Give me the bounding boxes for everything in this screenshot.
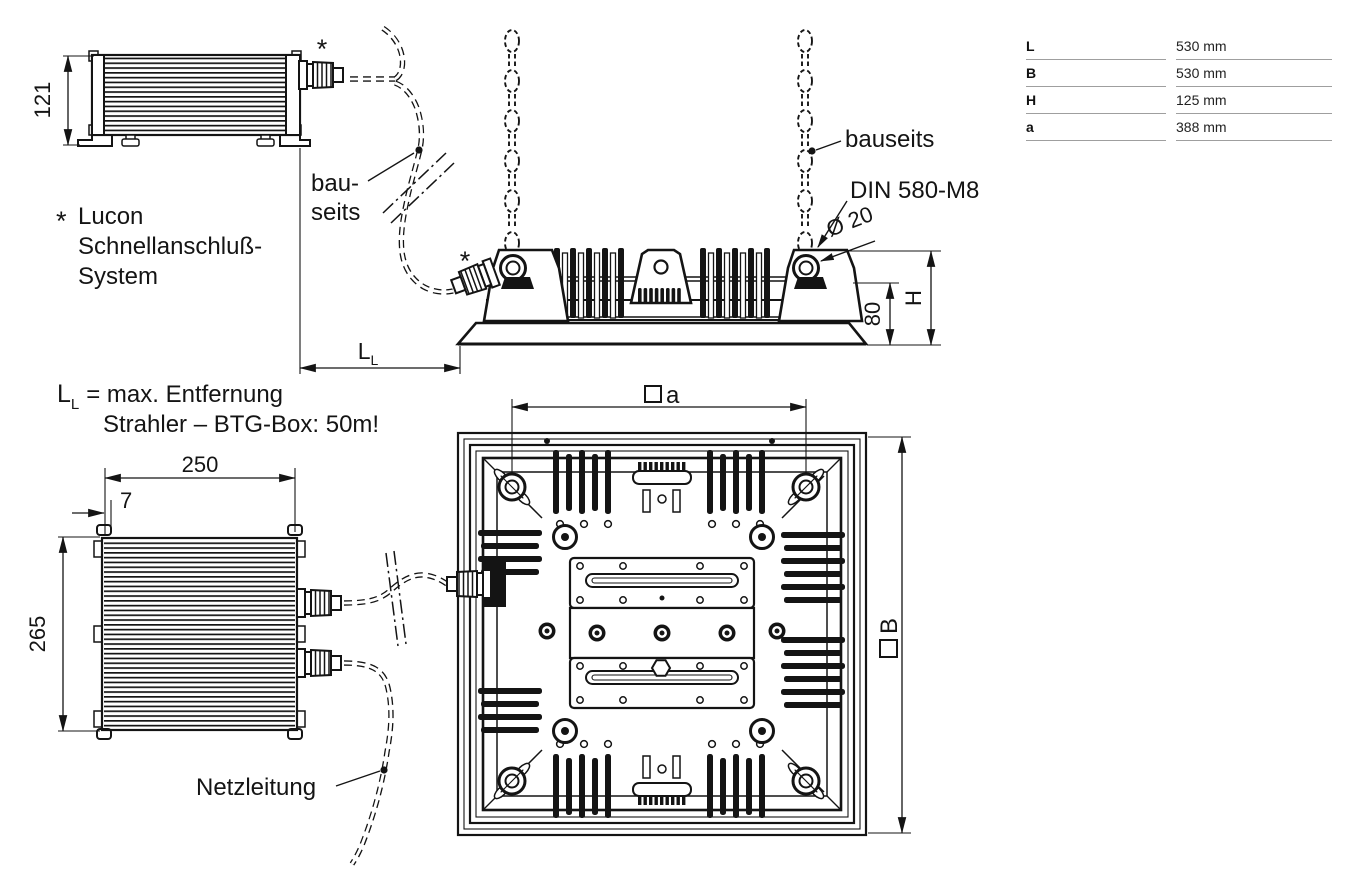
cable-break-mark <box>391 163 454 223</box>
eyebolt <box>780 755 832 807</box>
table-row-label: a <box>1026 114 1166 141</box>
table-row-label: B <box>1026 60 1166 87</box>
lucon-note-star: * <box>56 206 67 236</box>
bauseits-left-line1: bau- <box>311 170 359 197</box>
hex-nut <box>652 660 670 676</box>
btg-box-height-dimension: 121 <box>30 56 94 145</box>
table-row: L 530 mm <box>1026 33 1332 60</box>
technical-drawing-page: * 121 * Lucon Schnellanschluß- System ba… <box>0 0 1345 878</box>
floodlight-top-view: a B <box>447 382 911 835</box>
height-dimensions: H 80 <box>846 251 941 345</box>
washer <box>554 526 577 549</box>
table-row: H 125 mm <box>1026 87 1332 114</box>
dim-80-label: 80 <box>860 302 885 326</box>
dim-LL-label: LL <box>358 338 379 368</box>
ll-note-line2: Strahler – BTG-Box: 50m! <box>103 411 379 438</box>
box-foot <box>122 135 139 146</box>
box-height-dimension: 265 <box>25 537 100 731</box>
table-row: B 530 mm <box>1026 60 1332 87</box>
box-width-dimension: 250 <box>105 452 295 534</box>
dim-H-label: H <box>901 290 926 306</box>
netzleitung-label: Netzleitung <box>196 774 316 801</box>
center-bracket <box>631 250 691 303</box>
box-side-tab <box>94 711 102 727</box>
heatsink-fins <box>478 688 542 733</box>
square-symbol <box>880 640 897 657</box>
box-side-tab <box>94 541 102 557</box>
heatsink-fins <box>553 754 611 818</box>
center-plates <box>539 558 786 708</box>
bolt <box>589 625 606 642</box>
dim-265-label: 265 <box>25 616 50 653</box>
box-foot <box>257 135 274 146</box>
table-row-value: 125 mm <box>1176 87 1332 114</box>
bottom-bracket <box>633 756 691 805</box>
ll-distance-note: LL= max. Entfernung Strahler – BTG-Box: … <box>57 380 379 438</box>
heatsink-fins <box>553 450 611 514</box>
dim-121-label: 121 <box>30 82 55 119</box>
heatsink-fins <box>781 532 845 603</box>
lucon-note-line1: Lucon <box>78 203 143 230</box>
box-end-cap <box>286 55 300 135</box>
ll-note-line1: LL= max. Entfernung <box>57 380 283 413</box>
lucon-note: * Lucon Schnellanschluß- System <box>56 203 262 290</box>
washer <box>751 720 774 743</box>
bauseits-left-line2: seits <box>311 199 360 226</box>
dim-250-label: 250 <box>182 452 219 477</box>
heatsink-fins <box>707 754 765 818</box>
bolt <box>769 623 786 640</box>
leader-dot <box>415 146 422 153</box>
dim-7-label: 7 <box>120 488 132 513</box>
washer <box>751 526 774 549</box>
dimension-table: L 530 mm B 530 mm H 125 mm a 388 mm <box>1026 33 1332 141</box>
cable-break-mark <box>383 153 446 213</box>
table-row: a 388 mm <box>1026 114 1332 141</box>
bolt <box>719 625 736 642</box>
suspension-chain-left <box>505 30 519 254</box>
box-end-cap <box>92 55 104 135</box>
dim-a-label: a <box>666 382 680 409</box>
heatsink-fins <box>781 637 845 708</box>
cable-gland <box>299 61 343 89</box>
lucon-note-line3: System <box>78 263 158 290</box>
box-corner-tab <box>97 525 111 535</box>
leader-dot <box>380 766 387 773</box>
bauseits-right-label: bauseits <box>845 126 934 153</box>
table-row-label: L <box>1026 33 1166 60</box>
housing-base <box>458 323 866 344</box>
diameter-20-label: Ø 20 <box>823 201 876 241</box>
cable-gland <box>297 649 341 677</box>
bauseits-leader <box>368 153 414 181</box>
quick-connector-asterisk: * <box>317 34 328 64</box>
cable-break-mark <box>386 553 398 646</box>
mounting-flange <box>280 135 310 146</box>
box-side-tab <box>297 541 305 557</box>
eyebolt-mount-right <box>779 250 862 321</box>
square-symbol <box>645 386 661 402</box>
table-row-value: 530 mm <box>1176 33 1332 60</box>
dim-B-label: B <box>876 618 903 634</box>
din-580-m8-label: DIN 580-M8 <box>850 177 979 204</box>
netzleitung-leader <box>336 771 380 786</box>
overall-width-dimension: B <box>868 437 911 833</box>
cable-gland <box>447 570 491 598</box>
heatsink-fins <box>707 450 765 514</box>
luminaire-cable-lower <box>344 551 447 646</box>
quick-connector-asterisk: * <box>460 246 471 276</box>
box-cooling-ribs <box>104 540 295 728</box>
table-row-label: H <box>1026 87 1166 114</box>
table-row-value: 530 mm <box>1176 60 1332 87</box>
mounting-flange <box>78 135 112 146</box>
box-cooling-ribs <box>104 57 286 133</box>
btg-box-side-view: * <box>78 34 343 146</box>
leader-dot <box>808 147 815 154</box>
table-row-value: 388 mm <box>1176 114 1332 141</box>
cable-gland <box>297 589 341 617</box>
lucon-note-line2: Schnellanschluß- <box>78 233 262 260</box>
bolt <box>654 625 671 642</box>
box-side-tab <box>297 711 305 727</box>
bolt <box>539 623 556 640</box>
box-side-tab <box>297 626 305 642</box>
floodlight-side-view: * bauseits DIN 580-M8 Ø 20 H 80 <box>449 30 980 345</box>
btg-box-top-view: 250 7 265 <box>25 452 341 739</box>
bauseits-leader <box>816 141 841 150</box>
suspension-chain-right <box>798 30 812 254</box>
top-bracket <box>633 462 691 512</box>
washer <box>554 720 577 743</box>
box-side-tab <box>94 626 102 642</box>
